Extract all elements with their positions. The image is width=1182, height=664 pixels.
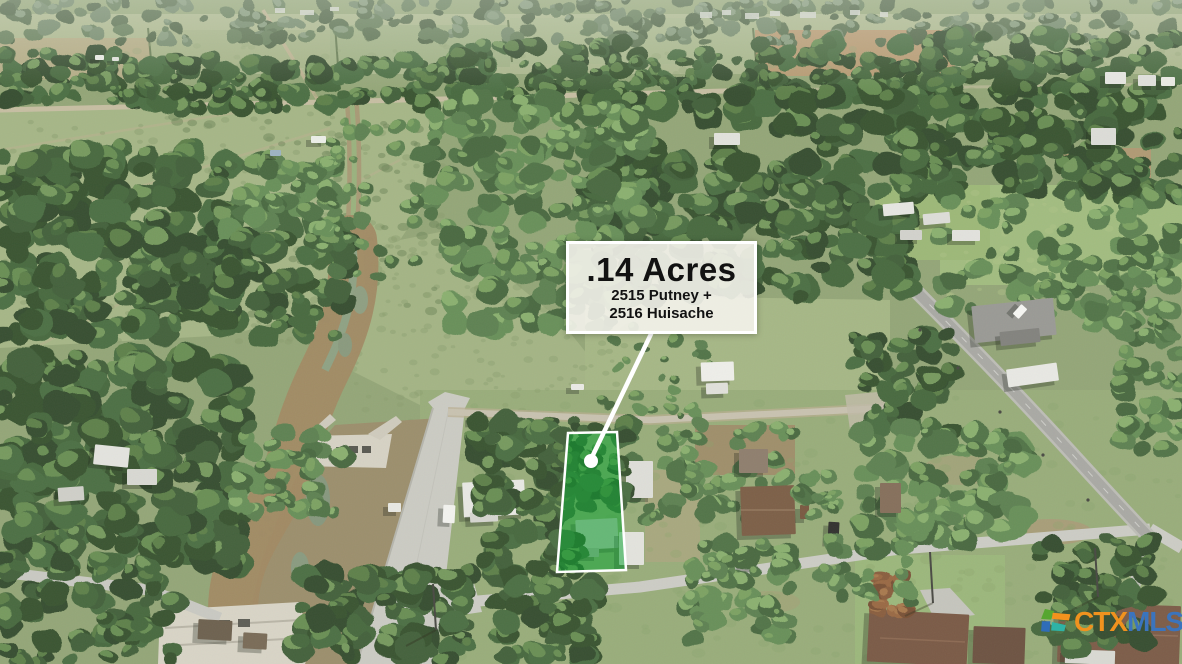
horizon-haze	[0, 0, 1182, 92]
acreage-label: .14 Acres	[586, 253, 736, 287]
address-line-2: 2516 Huisache	[609, 305, 713, 322]
logo-teal-shape	[1051, 622, 1066, 631]
aerial-photo: .14 Acres 2515 Putney + 2516 Huisache CT…	[0, 0, 1182, 664]
ctxmls-logo: CTXMLS	[1038, 604, 1182, 640]
logo-text-ctx: CTX	[1074, 606, 1127, 637]
map-dot	[584, 454, 598, 468]
logo-blue-shape	[1041, 621, 1050, 632]
logo-text-mls: MLS	[1127, 606, 1182, 637]
ctxmls-logo-icon	[1038, 604, 1072, 640]
logo-orange-shape	[1052, 613, 1071, 621]
info-card: .14 Acres 2515 Putney + 2516 Huisache	[566, 241, 757, 334]
address-line-1: 2515 Putney +	[611, 287, 711, 304]
